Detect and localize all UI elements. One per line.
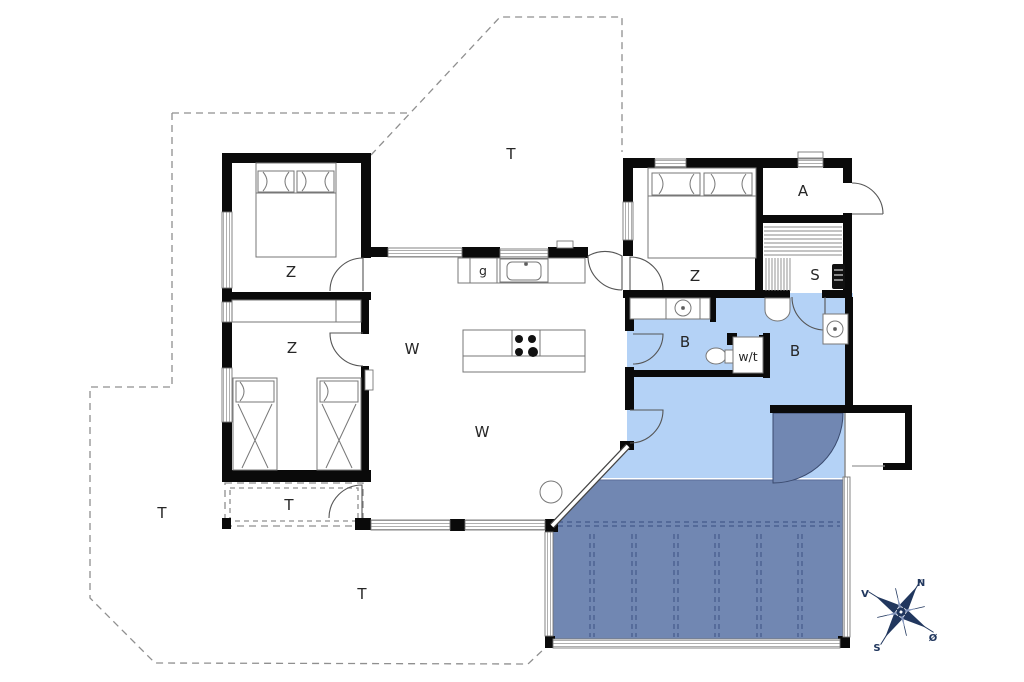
label-bath-right: B	[790, 342, 800, 360]
sauna-benches	[764, 227, 842, 291]
kitchen-counter	[458, 258, 585, 283]
compass-rose: N V S Ø	[849, 560, 954, 665]
label-bedroom-top-left: Z	[286, 263, 296, 281]
toilet	[706, 348, 726, 364]
door-terrace-small	[329, 485, 362, 518]
label-terrace-bottom: T	[356, 585, 367, 603]
label-terrace-left: T	[156, 504, 167, 522]
label-living-upper: W	[405, 340, 420, 358]
vent-box	[798, 152, 823, 158]
label-washer-dryer: w/t	[738, 349, 757, 364]
door-bedroom-ml	[330, 333, 363, 366]
label-terrace-top: T	[505, 145, 516, 163]
door-bedroom-tr	[630, 257, 663, 290]
compass-west-label: V	[861, 589, 869, 600]
door-bedroom-tl	[330, 258, 363, 291]
wardrobe	[232, 300, 361, 322]
single-bed-1	[233, 378, 277, 470]
single-bed-2	[317, 378, 361, 470]
floor-plan: N V S Ø Z Z Z W W B B A S g w/t T T T T	[0, 0, 1024, 682]
shower	[765, 298, 790, 321]
wall-shelf	[365, 370, 373, 390]
door-kitchen-terrace	[588, 251, 622, 290]
vent-box	[557, 241, 573, 248]
round-table	[540, 481, 562, 503]
label-terrace-small: T	[283, 496, 294, 514]
double-bed-1	[256, 163, 336, 257]
compass-east-label: Ø	[929, 632, 938, 644]
compass-south-label: S	[873, 643, 880, 654]
floor-plan-canvas: N V S Ø Z Z Z W W B B A S g w/t T T T T	[0, 0, 1024, 682]
kitchen-island	[463, 330, 585, 372]
double-bed-2	[648, 168, 756, 258]
label-bedroom-mid-left: Z	[287, 339, 297, 357]
label-bedroom-top-right: Z	[690, 267, 700, 285]
label-living-lower: W	[475, 423, 490, 441]
sauna-heater	[832, 264, 845, 289]
kitchen-sink	[507, 262, 541, 280]
compass-north-label: N	[917, 578, 925, 589]
label-annex: A	[798, 182, 809, 200]
label-sauna: S	[810, 266, 820, 284]
label-bath-left: B	[680, 333, 690, 351]
door-annex-exterior	[852, 183, 883, 214]
label-appliance: g	[479, 263, 487, 278]
